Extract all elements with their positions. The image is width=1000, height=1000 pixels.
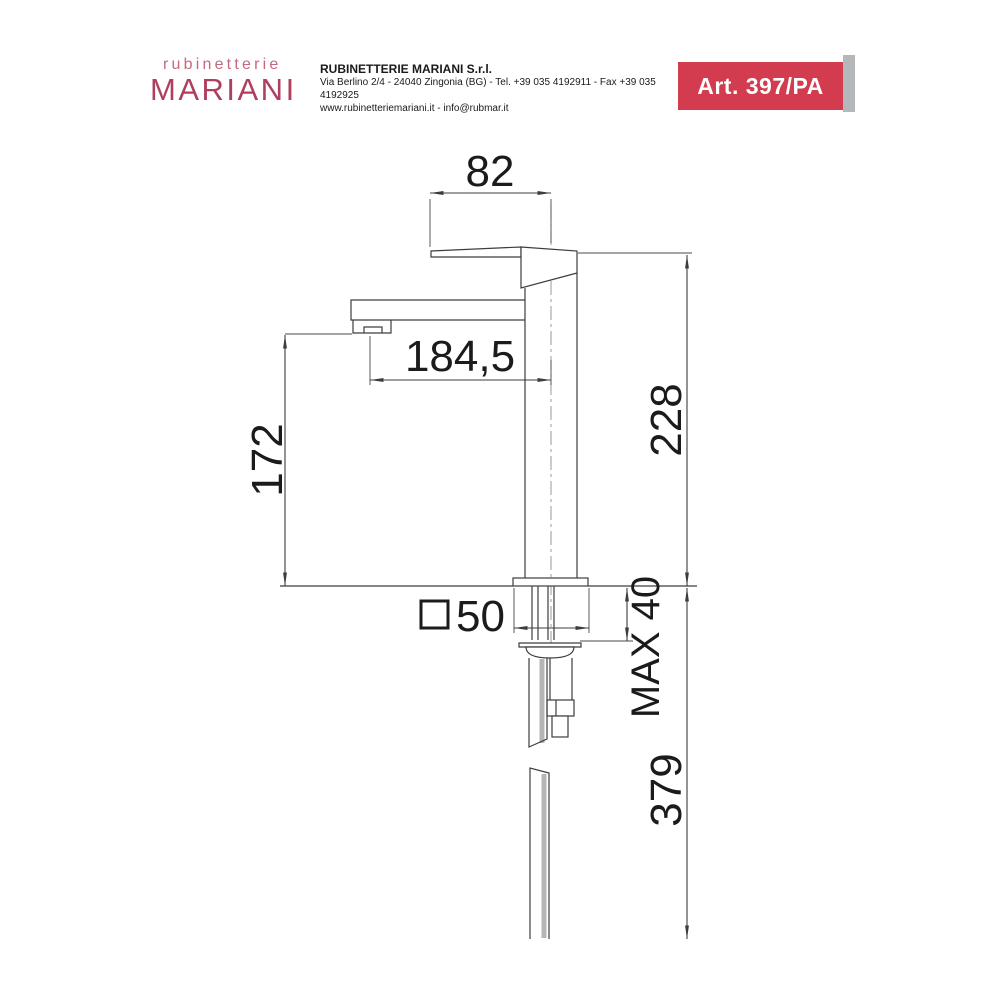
lock-nut	[547, 700, 574, 716]
spout	[351, 300, 525, 320]
aerator	[353, 320, 391, 333]
dim-82-extensions	[430, 199, 551, 247]
threaded-stud	[552, 716, 568, 737]
dim-379-label: 379	[642, 753, 691, 826]
handle-cap	[521, 247, 577, 288]
fixing-washer-lower	[526, 647, 574, 658]
dim-50-label: 50	[456, 592, 505, 641]
square-section-symbol	[421, 601, 448, 628]
base-flange	[513, 578, 588, 586]
dimension-lines: 82 184,5 172 228 50 MAX 40 379	[243, 147, 692, 939]
faucet-technical-drawing: 82 184,5 172 228 50 MAX 40 379	[0, 0, 1000, 1000]
datasheet-page: rubinetterie MARIANI RUBINETTERIE MARIAN…	[0, 0, 1000, 1000]
dim-172-label: 172	[243, 423, 292, 496]
dim-82-label: 82	[466, 147, 515, 196]
threaded-tube	[550, 658, 572, 700]
handle-lever	[431, 247, 521, 257]
dim-1845-label: 184,5	[405, 332, 515, 381]
dim-max40-label: MAX 40	[624, 576, 668, 718]
dim-228-label: 228	[642, 383, 691, 456]
